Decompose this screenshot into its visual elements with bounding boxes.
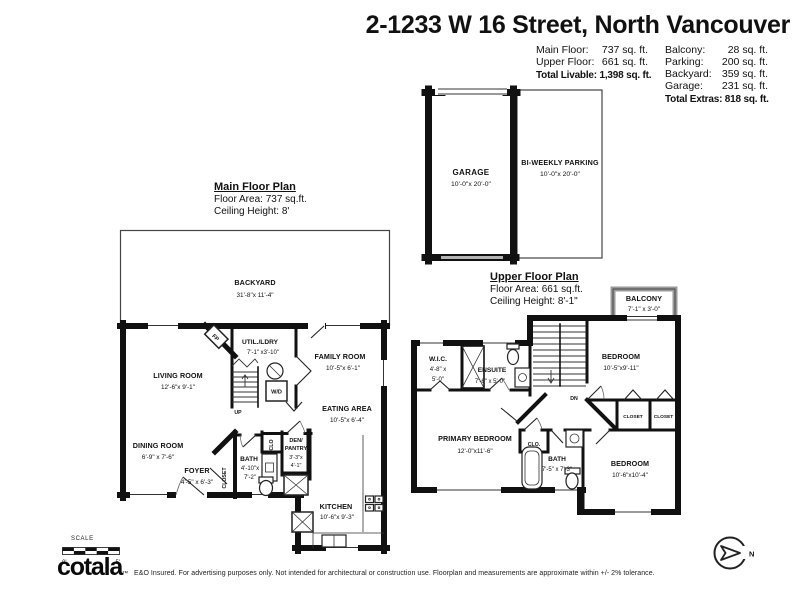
label-backyard-dims: 31'-8"x 11'-4" (236, 292, 273, 299)
stat-label: Parking: (665, 56, 704, 68)
label-up: UP (234, 410, 242, 416)
label-bedroom-br: BEDROOM (611, 459, 649, 468)
label-kitchen-dims: 10'-6"x 9'-3" (320, 514, 354, 521)
label-clo-vertical: CLO (269, 440, 275, 451)
total-livable: Total Livable: 1,398 sq. ft. (536, 70, 648, 82)
label-closet-vertical: CLOSET (222, 467, 228, 489)
label-foyer: FOYER (184, 466, 210, 475)
stat-value: 200 sq. ft. (722, 56, 768, 68)
stat-value: 28 sq. ft. (728, 44, 768, 56)
label-eating-area: EATING AREA (322, 404, 372, 413)
label-living-room-dims: 12'-6"x 9'-1" (161, 384, 195, 391)
label-dining-room: DINING ROOM (133, 441, 184, 450)
stat-value: 661 sq. ft. (602, 56, 648, 68)
label-garage: GARAGE (453, 168, 490, 177)
stat-label: Main Floor: (536, 44, 589, 56)
label-balcony: BALCONY (626, 294, 662, 303)
toilet-bowl (260, 481, 273, 496)
label-bath: BATH (240, 456, 258, 463)
page-title: 2-1233 W 16 Street, North Vancouver (366, 11, 790, 40)
stat-row: Garage: 231 sq. ft. (665, 80, 768, 92)
label-bath-upper: BATH (548, 456, 566, 463)
bath-toilet-bowl (566, 473, 578, 489)
bath-sink (566, 430, 583, 447)
extras-stats: Balcony: 28 sq. ft. Parking: 200 sq. ft.… (665, 44, 768, 106)
stat-row: Main Floor: 737 sq. ft. (536, 44, 648, 56)
cotala-logo: cotala™ (57, 553, 128, 582)
label-closet-2: CLOSET (654, 414, 674, 420)
stat-value: 359 sq. ft. (722, 68, 768, 80)
label-wic-dims1: 4'-8" x (430, 367, 447, 373)
livable-stats: Main Floor: 737 sq. ft. Upper Floor: 661… (536, 44, 648, 82)
label-primary-bedroom-dims: 12'-0"x11'-6" (457, 448, 492, 455)
label-primary-bedroom: PRIMARY BEDROOM (438, 434, 512, 443)
stat-value: 737 sq. ft. (602, 44, 648, 56)
label-bath-dims1: 4'-10"x (241, 466, 259, 472)
label-util-ldry-dims: 7'-1" x3'-10" (247, 350, 279, 356)
label-bedroom-tr-dims: 10'-5"x9'-11" (603, 365, 638, 372)
label-living-room: LIVING ROOM (153, 371, 202, 380)
label-bedroom-tr: BEDROOM (602, 352, 640, 361)
label-balcony-dims: 7'-1" x 3'-0" (628, 306, 660, 313)
stat-row: Parking: 200 sq. ft. (665, 56, 768, 68)
upper-floor-stairs (533, 324, 586, 386)
label-ensuite-dims: 7'-6" x 5'-0" (475, 379, 505, 385)
label-den1: DEN/ (289, 438, 303, 444)
north-arrow-pointer (721, 546, 740, 560)
label-dn: DN (570, 396, 578, 402)
cooktop-burners (366, 496, 384, 511)
label-foyer-dims: 4'-5" x 6'-3" (181, 479, 213, 486)
label-clo: CLO. (528, 442, 541, 448)
label-family-room-dims: 10'-5"x 6'-1" (326, 365, 360, 372)
ensuite-toilet-tank (507, 344, 519, 349)
label-dining-room-dims: 6'-9" x 7'-6" (142, 454, 174, 461)
garage-plan-drawing: GARAGE 10'-0"x 20'-0" BI-WEEKLY PARKING … (415, 85, 615, 270)
stat-row: Backyard: 359 sq. ft. (665, 68, 768, 80)
main-floor-ceiling: Ceiling Height: 8' (214, 206, 307, 219)
label-parking: BI-WEEKLY PARKING (521, 158, 599, 167)
label-backyard: BACKYARD (234, 278, 275, 287)
logo-trademark: ™ (122, 571, 128, 577)
upper-floor-drawing: BALCONY 7'-1" x 3'-0" W.I.C. 4'-8" x 5'-… (405, 282, 695, 522)
label-ensuite: ENSUITE (478, 367, 507, 374)
label-den4: 4'-1" (291, 463, 302, 469)
label-family-room: FAMILY ROOM (314, 352, 365, 361)
total-extras: Total Extras: 818 sq. ft. (665, 94, 768, 106)
stat-row: Balcony: 28 sq. ft. (665, 44, 768, 56)
label-wic: W.I.C. (429, 356, 447, 363)
stat-label: Balcony: (665, 44, 705, 56)
label-den3: 3'-3"x (289, 455, 303, 461)
label-closet-1: CLOSET (623, 414, 643, 420)
label-kitchen: KITCHEN (320, 502, 353, 511)
floorplan-page: 2-1233 W 16 Street, North Vancouver Main… (0, 0, 800, 600)
ensuite-sink (515, 368, 530, 387)
north-label: N (749, 550, 754, 559)
scale-label: SCALE (71, 536, 120, 542)
label-wd: W/D (271, 390, 282, 396)
main-floor-title: Main Floor Plan (214, 181, 307, 194)
main-floor-stairs (232, 359, 258, 407)
label-bath-dims2: 7'-2" (244, 475, 256, 481)
label-bath-upper-dims: 7'-5" x 7'-3" (542, 467, 572, 473)
main-floor-drawing: FP BACKYARD 31'-8"x 11'-4" LIVING ROOM 1… (110, 225, 400, 555)
main-floor-area: Floor Area: 737 sq.ft. (214, 194, 307, 207)
main-floor-heading: Main Floor Plan Floor Area: 737 sq.ft. C… (214, 181, 307, 219)
label-eating-area-dims: 10'-5"x 6'-4" (330, 417, 364, 424)
stat-value: 231 sq. ft. (722, 80, 768, 92)
stat-row: Upper Floor: 661 sq. ft. (536, 56, 648, 68)
north-arrow: N (708, 532, 758, 576)
stat-label: Garage: (665, 80, 703, 92)
label-bedroom-br-dims: 10'-6"x10'-4" (612, 472, 648, 479)
label-garage-dims: 10'-0"x 20'-0" (451, 181, 492, 188)
logo-text: cotala (57, 553, 122, 581)
stat-label: Upper Floor: (536, 56, 594, 68)
label-den2: PANTRY (285, 446, 308, 452)
disclaimer-text: E&O Insured. For advertising purposes on… (134, 570, 655, 577)
stat-label: Backyard: (665, 68, 712, 80)
label-parking-dims: 10'-0"x 20'-0" (540, 171, 581, 178)
label-wic-dims2: 5'-0" (432, 377, 444, 383)
label-util-ldry: UTIL./LDRY (242, 339, 279, 346)
ensuite-toilet-bowl (508, 350, 519, 365)
